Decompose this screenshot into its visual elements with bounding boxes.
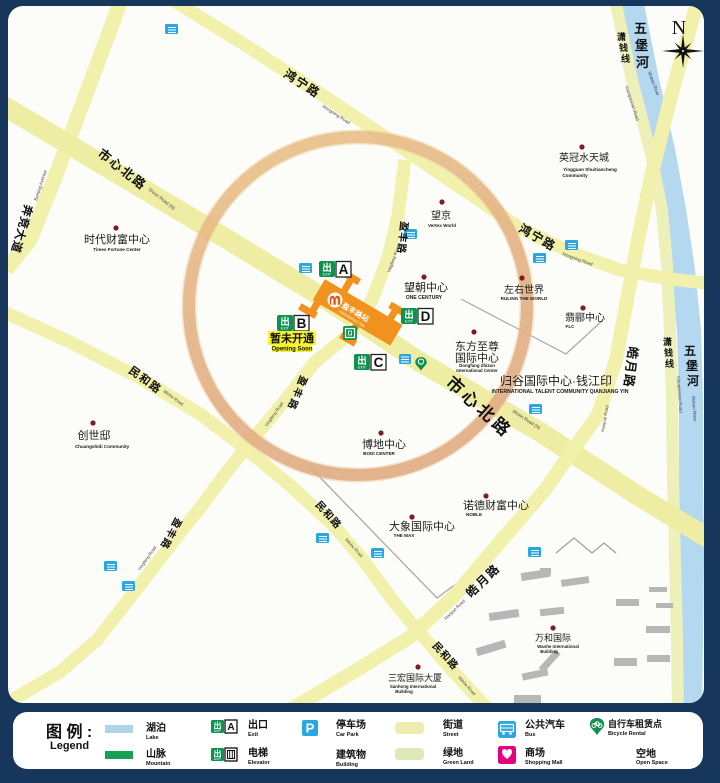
svg-text:Lake: Lake [146,735,159,741]
svg-text:左右世界: 左右世界 [504,283,544,296]
svg-text:东方至尊: 东方至尊 [455,339,499,353]
svg-text:THE MAX: THE MAX [394,533,416,538]
svg-text:P: P [306,721,315,736]
svg-text:时代财富中心: 时代财富中心 [84,232,150,246]
svg-text:Elevator: Elevator [248,760,271,766]
svg-text:Exit: Exit [248,732,258,738]
svg-text:空地: 空地 [636,747,656,760]
svg-text:街道: 街道 [442,718,463,731]
svg-text:望京: 望京 [431,209,451,222]
svg-text:Opening Soon: Opening Soon [272,347,313,353]
svg-text:创世邸: 创世邸 [78,429,111,442]
svg-text:EXIT: EXIT [214,757,221,761]
svg-text:BODI CENTER: BODI CENTER [363,451,395,456]
svg-text:Building: Building [540,649,558,654]
svg-text:N: N [672,17,686,39]
svg-text:Chuangshidi Community: Chuangshidi Community [75,444,130,449]
svg-text:湖泊: 湖泊 [146,721,166,734]
svg-text:Community: Community [562,173,588,178]
svg-text:Open Space: Open Space [636,760,668,766]
svg-text:暂未开通: 暂未开通 [270,331,314,345]
svg-text:A: A [339,262,349,277]
svg-text:图 例 :: 图 例 : [46,722,92,741]
svg-text:International Center: International Center [456,368,498,373]
svg-text:Times Fortune Center: Times Fortune Center [93,247,141,252]
svg-text:大象国际中心: 大象国际中心 [389,519,455,533]
svg-text:C: C [374,355,384,370]
svg-text:停车场: 停车场 [336,718,366,731]
svg-text:自行车租赁点: 自行车租赁点 [608,718,662,729]
svg-text:电梯: 电梯 [248,746,268,759]
svg-text:英冠水天城: 英冠水天城 [559,151,609,164]
svg-text:诺德财富中心: 诺德财富中心 [463,498,529,512]
svg-text:A: A [227,722,234,733]
svg-text:望朝中心: 望朝中心 [404,281,448,294]
svg-text:归谷国际中心·钱江印: 归谷国际中心·钱江印 [500,373,612,388]
svg-text:Vertex World: Vertex World [428,223,456,228]
svg-text:出口: 出口 [248,718,268,731]
svg-text:翡郦中心: 翡郦中心 [565,311,605,324]
svg-text:D: D [421,309,431,324]
svg-text:EXIT: EXIT [323,273,332,277]
svg-text:EXIT: EXIT [281,327,290,331]
svg-text:NOBLE: NOBLE [466,512,482,517]
svg-text:EXIT: EXIT [358,366,367,370]
svg-text:万和国际: 万和国际 [535,633,571,643]
svg-text:建筑物: 建筑物 [335,748,366,761]
svg-text:三宏国际大厦: 三宏国际大厦 [388,672,442,683]
svg-text:Shopping Mall: Shopping Mall [525,760,563,766]
svg-text:FLC: FLC [566,324,576,329]
svg-text:Legend: Legend [50,740,89,752]
svg-text:绿地: 绿地 [443,746,463,759]
svg-text:EXIT: EXIT [405,320,414,324]
svg-text:ONE CENTURY: ONE CENTURY [406,295,443,301]
svg-text:山脉: 山脉 [146,747,167,760]
svg-text:Green Land: Green Land [443,760,474,766]
svg-text:公共汽车: 公共汽车 [525,718,565,731]
svg-text:Building: Building [336,762,358,768]
svg-text:Street: Street [443,732,459,738]
svg-text:EXIT: EXIT [214,729,221,733]
svg-text:博地中心: 博地中心 [362,438,406,451]
svg-text:Yingguan Shuitiancheng: Yingguan Shuitiancheng [563,167,617,172]
svg-text:INTERNATIONAL TALENT COMMUNITY: INTERNATIONAL TALENT COMMUNITY QIANJIANG… [492,389,629,395]
svg-text:Bicycle Rental: Bicycle Rental [608,731,646,737]
svg-text:Building: Building [395,689,413,694]
svg-text:B: B [297,316,307,331]
svg-text:Mountain: Mountain [146,761,171,767]
svg-text:Car Park: Car Park [336,732,360,738]
svg-text:Bus: Bus [525,732,535,738]
svg-text:商场: 商场 [525,746,545,759]
svg-text:RULING THE WORLD: RULING THE WORLD [501,296,548,301]
svg-text:五堡河: 五堡河 [634,21,649,70]
